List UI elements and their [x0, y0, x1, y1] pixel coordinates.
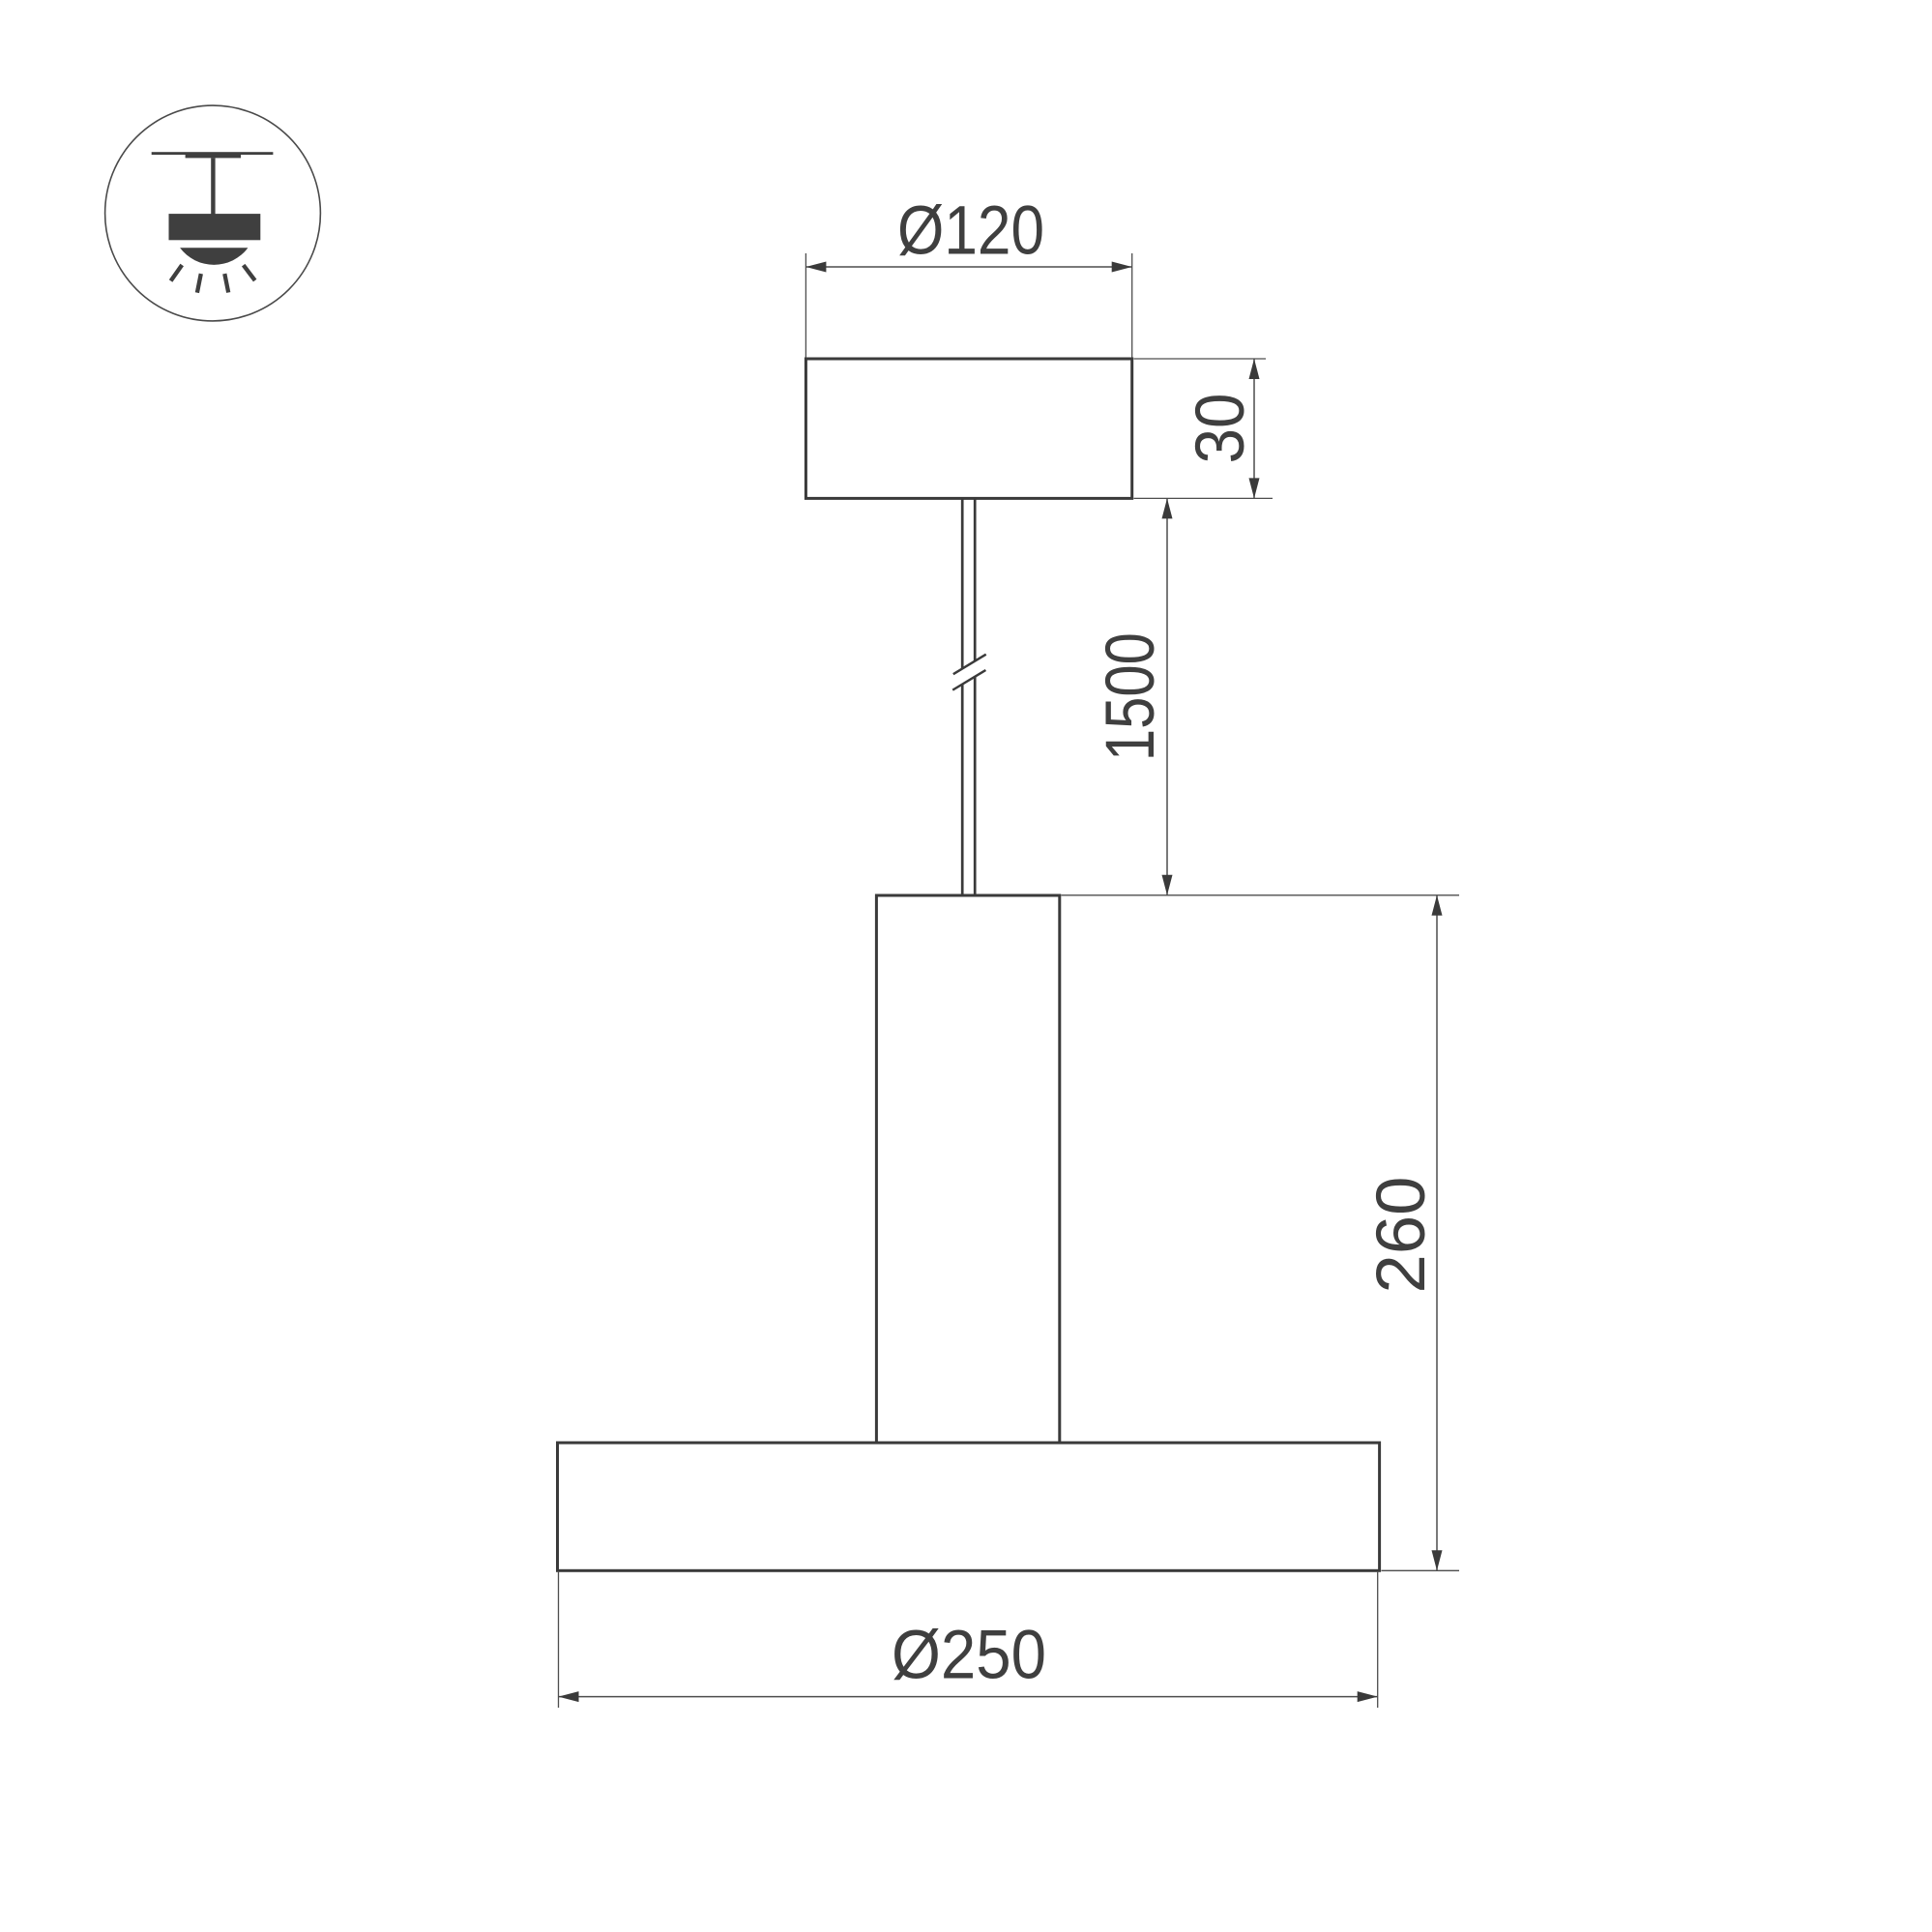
svg-text:Ø120: Ø120: [897, 192, 1044, 269]
svg-text:Ø250: Ø250: [892, 1618, 1046, 1694]
svg-text:30: 30: [1183, 394, 1259, 464]
svg-text:1500: 1500: [1093, 632, 1169, 761]
svg-text:260: 260: [1363, 1177, 1440, 1294]
